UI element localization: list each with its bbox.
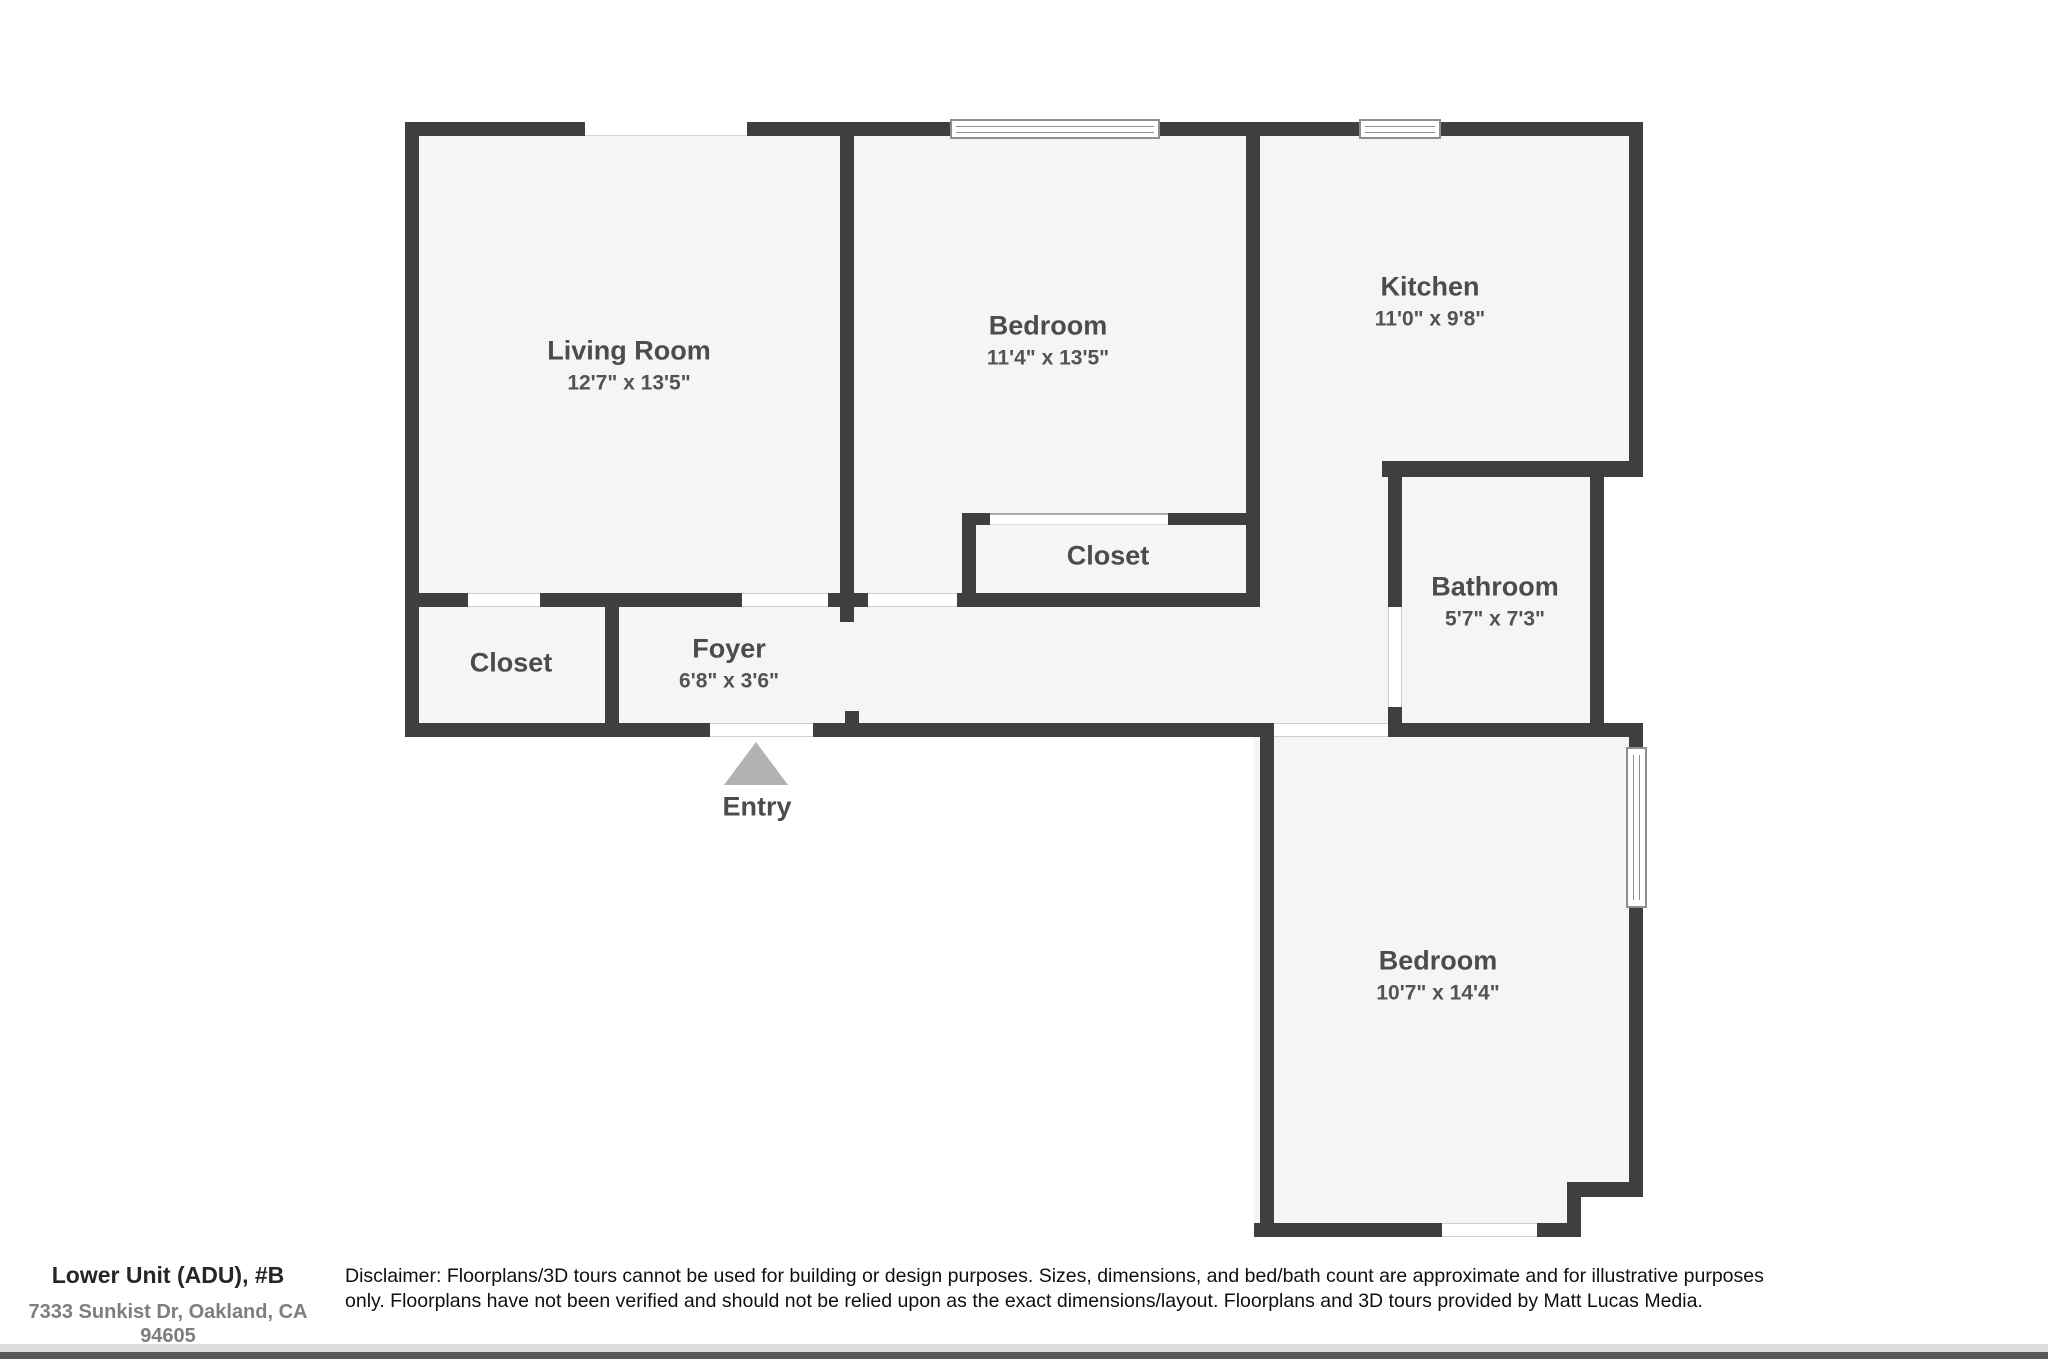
room-name: Bedroom — [987, 310, 1109, 341]
entry-closet-door-opening — [468, 593, 540, 607]
room-label-bedroom-bottom: Bedroom 10'7" x 14'4" — [1376, 945, 1499, 1006]
bedroom-top-door-opening — [868, 593, 957, 607]
room-dims: 5'7" x 7'3" — [1431, 605, 1559, 632]
wall-mid-3 — [957, 593, 1255, 607]
wall-closet-left — [962, 513, 976, 605]
wall-bottom-1 — [405, 723, 710, 737]
bedroom-bottom-door-opening — [1274, 723, 1388, 737]
room-label-living-room: Living Room 12'7" x 13'5" — [547, 335, 711, 396]
room-dims: 10'7" x 14'4" — [1376, 979, 1499, 1006]
room-name: Foyer — [679, 633, 779, 664]
wall-living-bedroom-divider — [840, 122, 854, 622]
wall-mid-2 — [540, 593, 742, 607]
room-label-bathroom: Bathroom 5'7" x 7'3" — [1431, 571, 1559, 632]
room-dims: 11'4" x 13'5" — [987, 344, 1109, 371]
window-pane — [1633, 755, 1640, 900]
bedroom-bottom-window-icon — [1626, 747, 1647, 908]
entry-door-opening — [710, 723, 813, 737]
wall-bedroom-bottom-1 — [1254, 1223, 1442, 1237]
wall-bedroom-bottom-right-lower — [1629, 908, 1643, 1197]
room-label-kitchen: Kitchen 11'0" x 9'8" — [1375, 271, 1486, 332]
room-name: Bathroom — [1431, 571, 1559, 602]
room-name: Closet — [470, 647, 553, 678]
bottom-band-dark — [0, 1352, 2048, 1359]
wall-bathroom-left-upper — [1388, 463, 1402, 607]
room-label-bedroom-top: Bedroom 11'4" x 13'5" — [987, 310, 1109, 371]
room-name: Closet — [1067, 540, 1150, 571]
unit-address: 7333 Sunkist Dr, Oakland, CA 94605 — [8, 1300, 328, 1348]
bedroom-top-window-icon — [950, 119, 1160, 139]
wall-bottom-3 — [1388, 723, 1643, 737]
bottom-band-light — [0, 1344, 2048, 1352]
footer-unit-block: Lower Unit (ADU), #B 7333 Sunkist Dr, Oa… — [8, 1262, 328, 1348]
wall-left-exterior — [405, 122, 419, 737]
wall-bathroom-right — [1590, 463, 1604, 737]
wall-kitchen-right — [1629, 122, 1643, 477]
disclaimer-text: Disclaimer: Floorplans/3D tours cannot b… — [345, 1264, 1805, 1314]
wall-top-1 — [405, 122, 585, 136]
bedroom-bottom-rear-opening — [1442, 1223, 1537, 1237]
wall-bedroom-bottom-right-upper — [1629, 723, 1643, 747]
entry-label: Entry — [722, 792, 791, 823]
window-pane — [1365, 126, 1435, 133]
living-room-door-opening — [742, 593, 828, 607]
room-label-bedroom-closet: Closet — [1067, 540, 1150, 571]
room-dims: 12'7" x 13'5" — [547, 369, 711, 396]
wall-bathroom-left-lower — [1388, 707, 1402, 737]
room-dims: 6'8" x 3'6" — [679, 667, 779, 694]
bathroom-door-opening — [1388, 607, 1402, 707]
wall-bottom-2 — [813, 723, 1274, 737]
kitchen-window-icon — [1359, 119, 1441, 139]
room-name: Kitchen — [1375, 271, 1486, 302]
wall-bedroom-bottom-left — [1260, 723, 1274, 1237]
wall-bedroom-kitchen-divider — [1246, 122, 1260, 607]
wall-bedroom-bottom-2 — [1537, 1223, 1581, 1237]
wall-mid-cross — [828, 593, 868, 607]
room-name: Bedroom — [1376, 945, 1499, 976]
unit-title: Lower Unit (ADU), #B — [8, 1262, 328, 1290]
wall-mid-1 — [405, 593, 468, 607]
window-pane — [956, 126, 1154, 133]
wall-top-4 — [1441, 122, 1643, 136]
floorplan-page: Living Room 12'7" x 13'5" Bedroom 11'4" … — [0, 0, 2048, 1359]
room-dims: 11'0" x 9'8" — [1375, 305, 1486, 332]
entry-arrow-icon — [724, 742, 788, 785]
room-label-entry-closet: Closet — [470, 647, 553, 678]
bedroom-closet-door-opening — [990, 513, 1168, 525]
wall-closet-top-right — [1168, 513, 1255, 525]
living-room-window-opening — [585, 122, 747, 136]
room-name: Living Room — [547, 335, 711, 366]
room-label-foyer: Foyer 6'8" x 3'6" — [679, 633, 779, 694]
wall-entry-closet-right — [605, 593, 619, 737]
wall-foyer-stub — [845, 711, 859, 723]
